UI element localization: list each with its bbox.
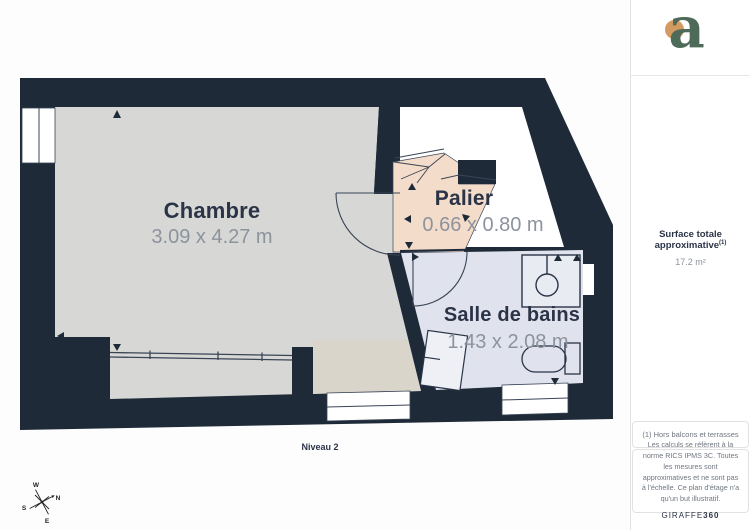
disclaimer-text: Les calculs se réfèrent à la norme RICS … bbox=[640, 440, 741, 505]
surface-label-sup: (1) bbox=[719, 240, 726, 246]
room-chambre-lower-strip bbox=[313, 340, 421, 394]
wall-niche bbox=[583, 264, 594, 295]
compass-w: W bbox=[33, 482, 40, 489]
room-label-chambre: Chambre bbox=[92, 198, 332, 224]
wall-block bbox=[458, 160, 496, 184]
compass-n: N bbox=[56, 495, 61, 502]
brand-suffix: 360 bbox=[703, 511, 719, 520]
logo-letter: a bbox=[669, 0, 705, 62]
surface-label: Surface totale approximative(1) bbox=[631, 229, 750, 251]
surface-panel: Surface totale approximative(1) 17.2 m² bbox=[631, 76, 750, 420]
info-sidebar: a Surface totale approximative(1) 17.2 m… bbox=[630, 0, 750, 530]
compass-e: E bbox=[45, 518, 50, 525]
floorplan-page: N E S W Chambre 3.09 x 4.27 m Palier 0.6… bbox=[0, 0, 750, 530]
brand-logo: GIRAFFE360 bbox=[661, 510, 719, 522]
room-dims-palier: 0.66 x 0.80 m bbox=[397, 214, 569, 237]
window-left bbox=[22, 108, 55, 163]
room-dims-chambre: 3.09 x 4.27 m bbox=[92, 226, 332, 249]
wall-post bbox=[292, 347, 313, 396]
window-bottom-1 bbox=[327, 391, 410, 421]
room-dims-bath: 1.43 x 2.08 m bbox=[428, 331, 588, 354]
level-label: Niveau 2 bbox=[285, 442, 355, 452]
room-label-bath: Salle de bains bbox=[423, 304, 601, 327]
surface-label-text: Surface totale approximative bbox=[655, 229, 722, 251]
footnote-text: (1) Hors balcons et terrasses bbox=[642, 430, 738, 439]
compass-icon bbox=[30, 490, 55, 515]
surface-value: 17.2 m² bbox=[675, 257, 706, 267]
logo-panel: a bbox=[631, 0, 750, 76]
room-label-palier: Palier bbox=[404, 187, 524, 211]
agency-logo: a bbox=[665, 9, 717, 67]
sink-icon bbox=[522, 255, 580, 307]
disclaimer-box: Les calculs se réfèrent à la norme RICS … bbox=[632, 449, 749, 513]
window-bottom-2 bbox=[502, 383, 568, 415]
brand-name: GIRAFFE bbox=[661, 511, 703, 520]
compass-s: S bbox=[22, 505, 27, 512]
